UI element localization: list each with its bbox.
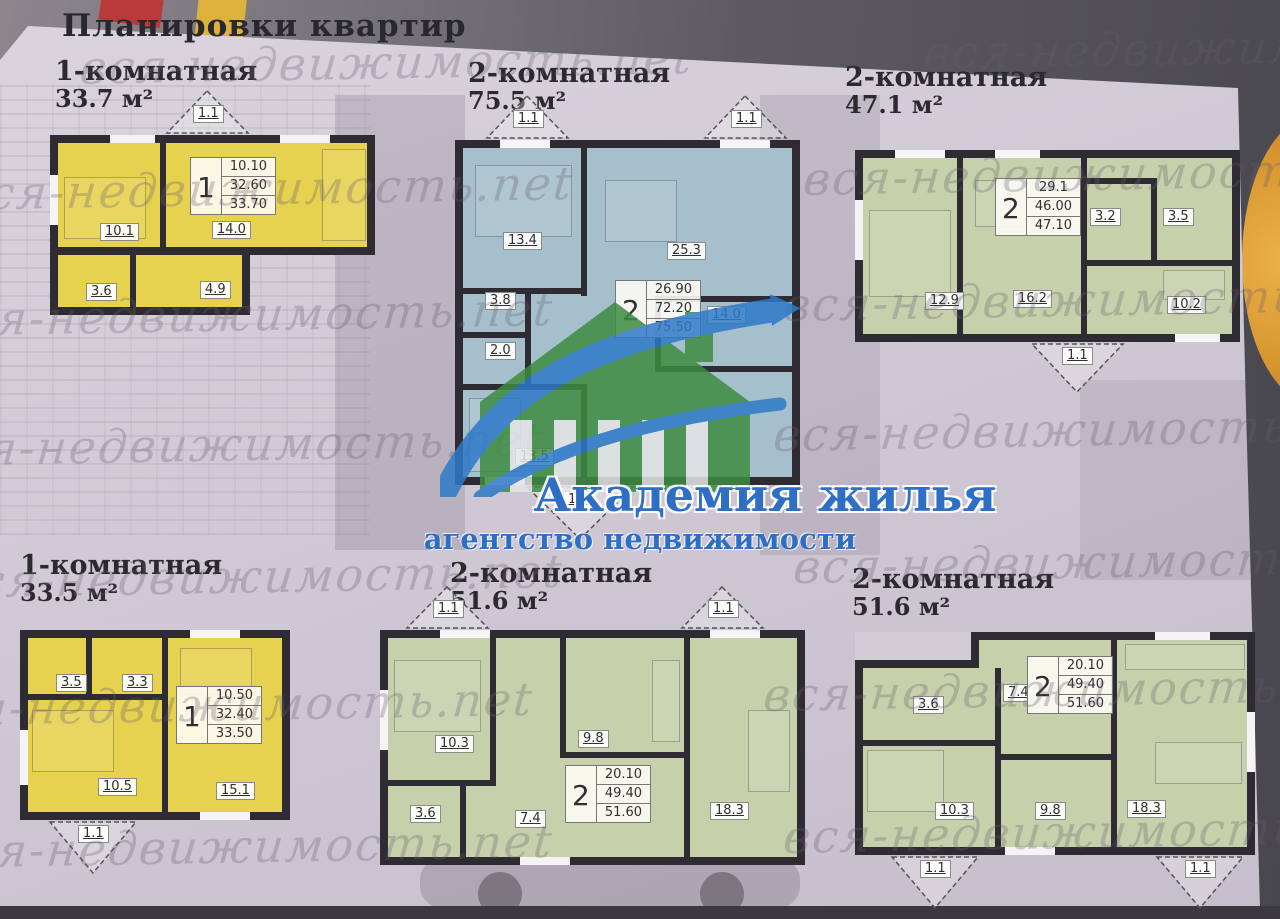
window [500,140,550,148]
floor-plan-2: 1.1 1.1 13.4 25.3 3.8 2.0 13.5 14.0 2 [455,140,800,485]
floor-plan-3: 12.9 16.2 3.2 3.5 10.2 2 29.1 46.00 47.1… [855,150,1240,342]
plan-2-type: 2-комнатная [468,60,670,88]
total-area: 33.70 [222,196,275,214]
balcony: 1.1 [165,89,250,135]
room-area-label: 18.3 [1127,800,1166,818]
room-area-label: 3.6 [86,283,117,301]
room-area-label: 12.9 [925,292,964,310]
balcony: 1.1 [1155,855,1245,910]
apartment-info-box: 1 10.10 32.60 33.70 [190,157,276,215]
room-area-label: 10.2 [1167,296,1206,314]
plan-6-area: 51.6 м² [852,594,1054,619]
room-area-label: 13.5 [515,448,554,466]
inner-wall [684,638,690,857]
inner-wall [1151,178,1157,260]
inner-wall [490,638,496,783]
room-area-label: 3.2 [1090,208,1121,226]
inner-wall [162,638,168,812]
room-area-label: 7.4 [515,810,546,828]
inner-wall [855,660,979,668]
window [110,135,155,143]
window [995,150,1040,158]
floor-plan-1: 1.1 10.1 14.0 3.6 4.9 1 10.10 32.60 33.7… [50,135,380,315]
total-area: 51.60 [1059,695,1112,713]
surface-bottom-edge [0,906,1280,919]
room-count: 1 [191,169,221,204]
room-area-label: 14.0 [212,221,251,239]
window [1175,334,1220,342]
floor-plan-4: 3.5 3.3 10.5 15.1 1 10.50 32.40 33.50 1.… [20,630,290,820]
photographed-brochure-page: Планировки квартир 1-комнатная 33.7 м² 2… [0,0,1280,919]
area-no-balcony: 72.20 [647,300,700,319]
balcony-area-label: 1.1 [1185,860,1216,878]
apartment-info-box: 2 20.10 49.40 51.60 [1027,656,1113,714]
balcony-area-label: 1.1 [513,110,544,128]
balcony: 1.1 [485,94,570,140]
area-no-balcony: 49.40 [597,785,650,804]
balcony-area-label: 1.1 [731,110,762,128]
living-area: 20.10 [1059,657,1112,676]
plan-4-type: 1-комнатная [20,552,222,580]
floor-plan-6: 3.6 7.4 10.3 9.8 18.3 2 20.10 49.40 51.6… [855,632,1255,855]
inner-wall [971,632,979,668]
window [190,630,240,638]
area-no-balcony: 46.00 [1027,198,1080,217]
apartment-info-box: 2 29.1 46.00 47.10 [995,178,1081,236]
living-area: 29.1 [1027,179,1080,198]
room-area-label: 3.6 [410,805,441,823]
room-area-label: 3.5 [56,674,87,692]
balcony-area-label: 1.1 [193,105,224,123]
apartment-info-box: 2 26.90 72.20 75.50 [615,280,701,338]
room-area-label: 3.6 [913,696,944,714]
balcony: 1.1 [405,585,490,630]
inner-wall [655,366,792,372]
room-count: 2 [996,190,1026,225]
area-no-balcony: 32.60 [222,177,275,196]
living-area: 26.90 [647,281,700,300]
furniture-outline [469,398,521,472]
plan-1-type: 1-комнатная [55,58,257,86]
area-no-balcony: 32.40 [208,706,261,725]
inner-wall [1081,158,1087,334]
plan-3-type: 2-комнатная [845,64,1047,92]
furniture-outline [475,165,572,237]
inner-wall [560,752,690,758]
balcony-area-label: 1.1 [920,860,951,878]
room-area-label: 10.3 [935,802,974,820]
total-area: 51.60 [597,804,650,822]
window [440,630,490,638]
photo-background-car-body [420,858,800,908]
room-area-label: 14.0 [707,306,746,324]
inner-wall [28,694,168,700]
balcony: 1.1 [890,855,980,910]
inner-wall [460,786,466,857]
inner-wall [1001,754,1111,760]
inner-wall [388,780,496,786]
furniture-outline [652,660,680,742]
furniture-outline [32,710,114,772]
furniture-outline [1125,644,1245,670]
inner-wall [863,740,997,746]
apartment-info-box: 2 20.10 49.40 51.60 [565,765,651,823]
area-no-balcony: 49.40 [1059,676,1112,695]
window [710,630,760,638]
furniture-outline [394,660,481,732]
inner-wall [463,332,531,338]
living-area: 20.10 [597,766,650,785]
balcony: 1.1 [680,585,765,630]
inner-wall [581,148,587,296]
outline-notch [855,632,973,662]
room-area-label: 2.0 [485,342,516,360]
furniture-outline [1155,742,1242,784]
inner-wall [130,253,136,309]
balcony: 1.1 [1030,342,1125,394]
room-area-label: 10.5 [98,778,137,796]
window [720,140,770,148]
balcony-area-label: 1.1 [1062,347,1093,365]
room-area-label: 13.4 [503,232,542,250]
balcony-area-label: 1.1 [708,600,739,618]
room-area-label: 25.3 [667,242,706,260]
total-area: 75.50 [647,319,700,337]
inner-wall [160,143,166,253]
window [855,200,863,260]
furniture-outline [748,710,790,792]
balcony: 1.1 [48,820,138,875]
window [200,812,250,820]
inner-wall [525,294,531,390]
page-title: Планировки квартир [62,8,467,44]
window [895,150,945,158]
inner-wall [581,390,587,477]
plan-4-area: 33.5 м² [20,580,222,605]
window [1247,712,1255,772]
room-area-label: 10.1 [100,223,139,241]
balcony: 1.1 [703,94,788,140]
window [20,730,28,785]
room-area-label: 10.3 [435,735,474,753]
furniture-outline [605,180,677,242]
living-area: 10.50 [208,687,261,706]
balcony-area-label: 1.1 [433,600,464,618]
inner-wall [86,638,92,694]
window [50,175,58,225]
room-count: 1 [177,698,207,733]
photo-background-building [1080,380,1250,580]
living-area: 10.10 [222,158,275,177]
plan-3-area: 47.1 м² [845,92,1047,117]
room-area-label: 3.8 [485,292,516,310]
room-area-label: 4.9 [200,281,231,299]
window [280,135,330,143]
furniture-outline [867,750,944,812]
window [1155,632,1210,640]
room-area-label: 18.3 [710,802,749,820]
room-count: 2 [566,777,596,812]
inner-wall [463,384,587,390]
plan-6-header: 2-комнатная 51.6 м² [852,566,1054,620]
apartment-info-box: 1 10.50 32.40 33.50 [176,686,262,744]
total-area: 47.10 [1027,217,1080,235]
room-area-label: 16.2 [1013,290,1052,308]
inner-wall [1087,260,1232,266]
room-count: 2 [616,292,646,327]
furniture-outline [322,149,366,241]
room-count: 2 [1028,668,1058,703]
window [520,857,570,865]
window [380,690,388,750]
floor-plan-5: 1.1 1.1 10.3 9.8 3.6 7.4 18.3 2 20.10 [380,630,805,865]
room-area-label: 9.8 [1035,802,1066,820]
plan-6-type: 2-комнатная [852,566,1054,594]
agency-name: Академия жилья [455,468,1075,522]
room-area-label: 15.1 [216,782,255,800]
room-area-label: 9.8 [578,730,609,748]
balcony-area-label: 1.1 [78,825,109,843]
room-area-label: 3.3 [122,674,153,692]
plan-4-header: 1-комнатная 33.5 м² [20,552,222,606]
agency-subtitle: агентство недвижимости [420,522,860,556]
plan-3-header: 2-комнатная 47.1 м² [845,64,1047,118]
inner-wall [1087,178,1151,184]
surface-orange-reel [1242,115,1280,405]
inner-wall [560,638,566,758]
room-area-label: 3.5 [1163,208,1194,226]
total-area: 33.50 [208,725,261,743]
window [1005,847,1055,855]
furniture-outline [869,210,951,297]
